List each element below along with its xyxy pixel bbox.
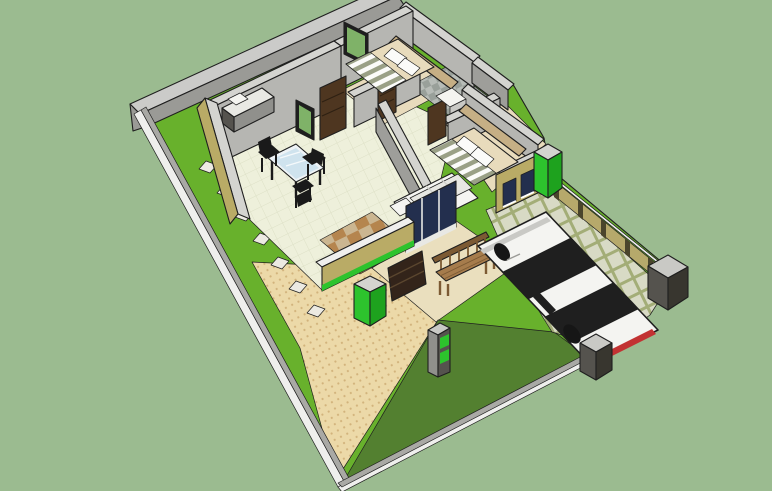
scene-canvas — [0, 0, 772, 491]
pillar-face-green — [534, 152, 548, 198]
3d-viewport[interactable] — [0, 0, 772, 491]
pillar-face-green — [354, 284, 370, 326]
mailbox-post — [428, 323, 450, 377]
gate-post-south — [580, 334, 612, 380]
main-door — [320, 76, 346, 140]
green-corner-pillar — [534, 144, 562, 198]
mailbox-face — [428, 330, 438, 377]
green-pillar-south — [354, 276, 386, 326]
